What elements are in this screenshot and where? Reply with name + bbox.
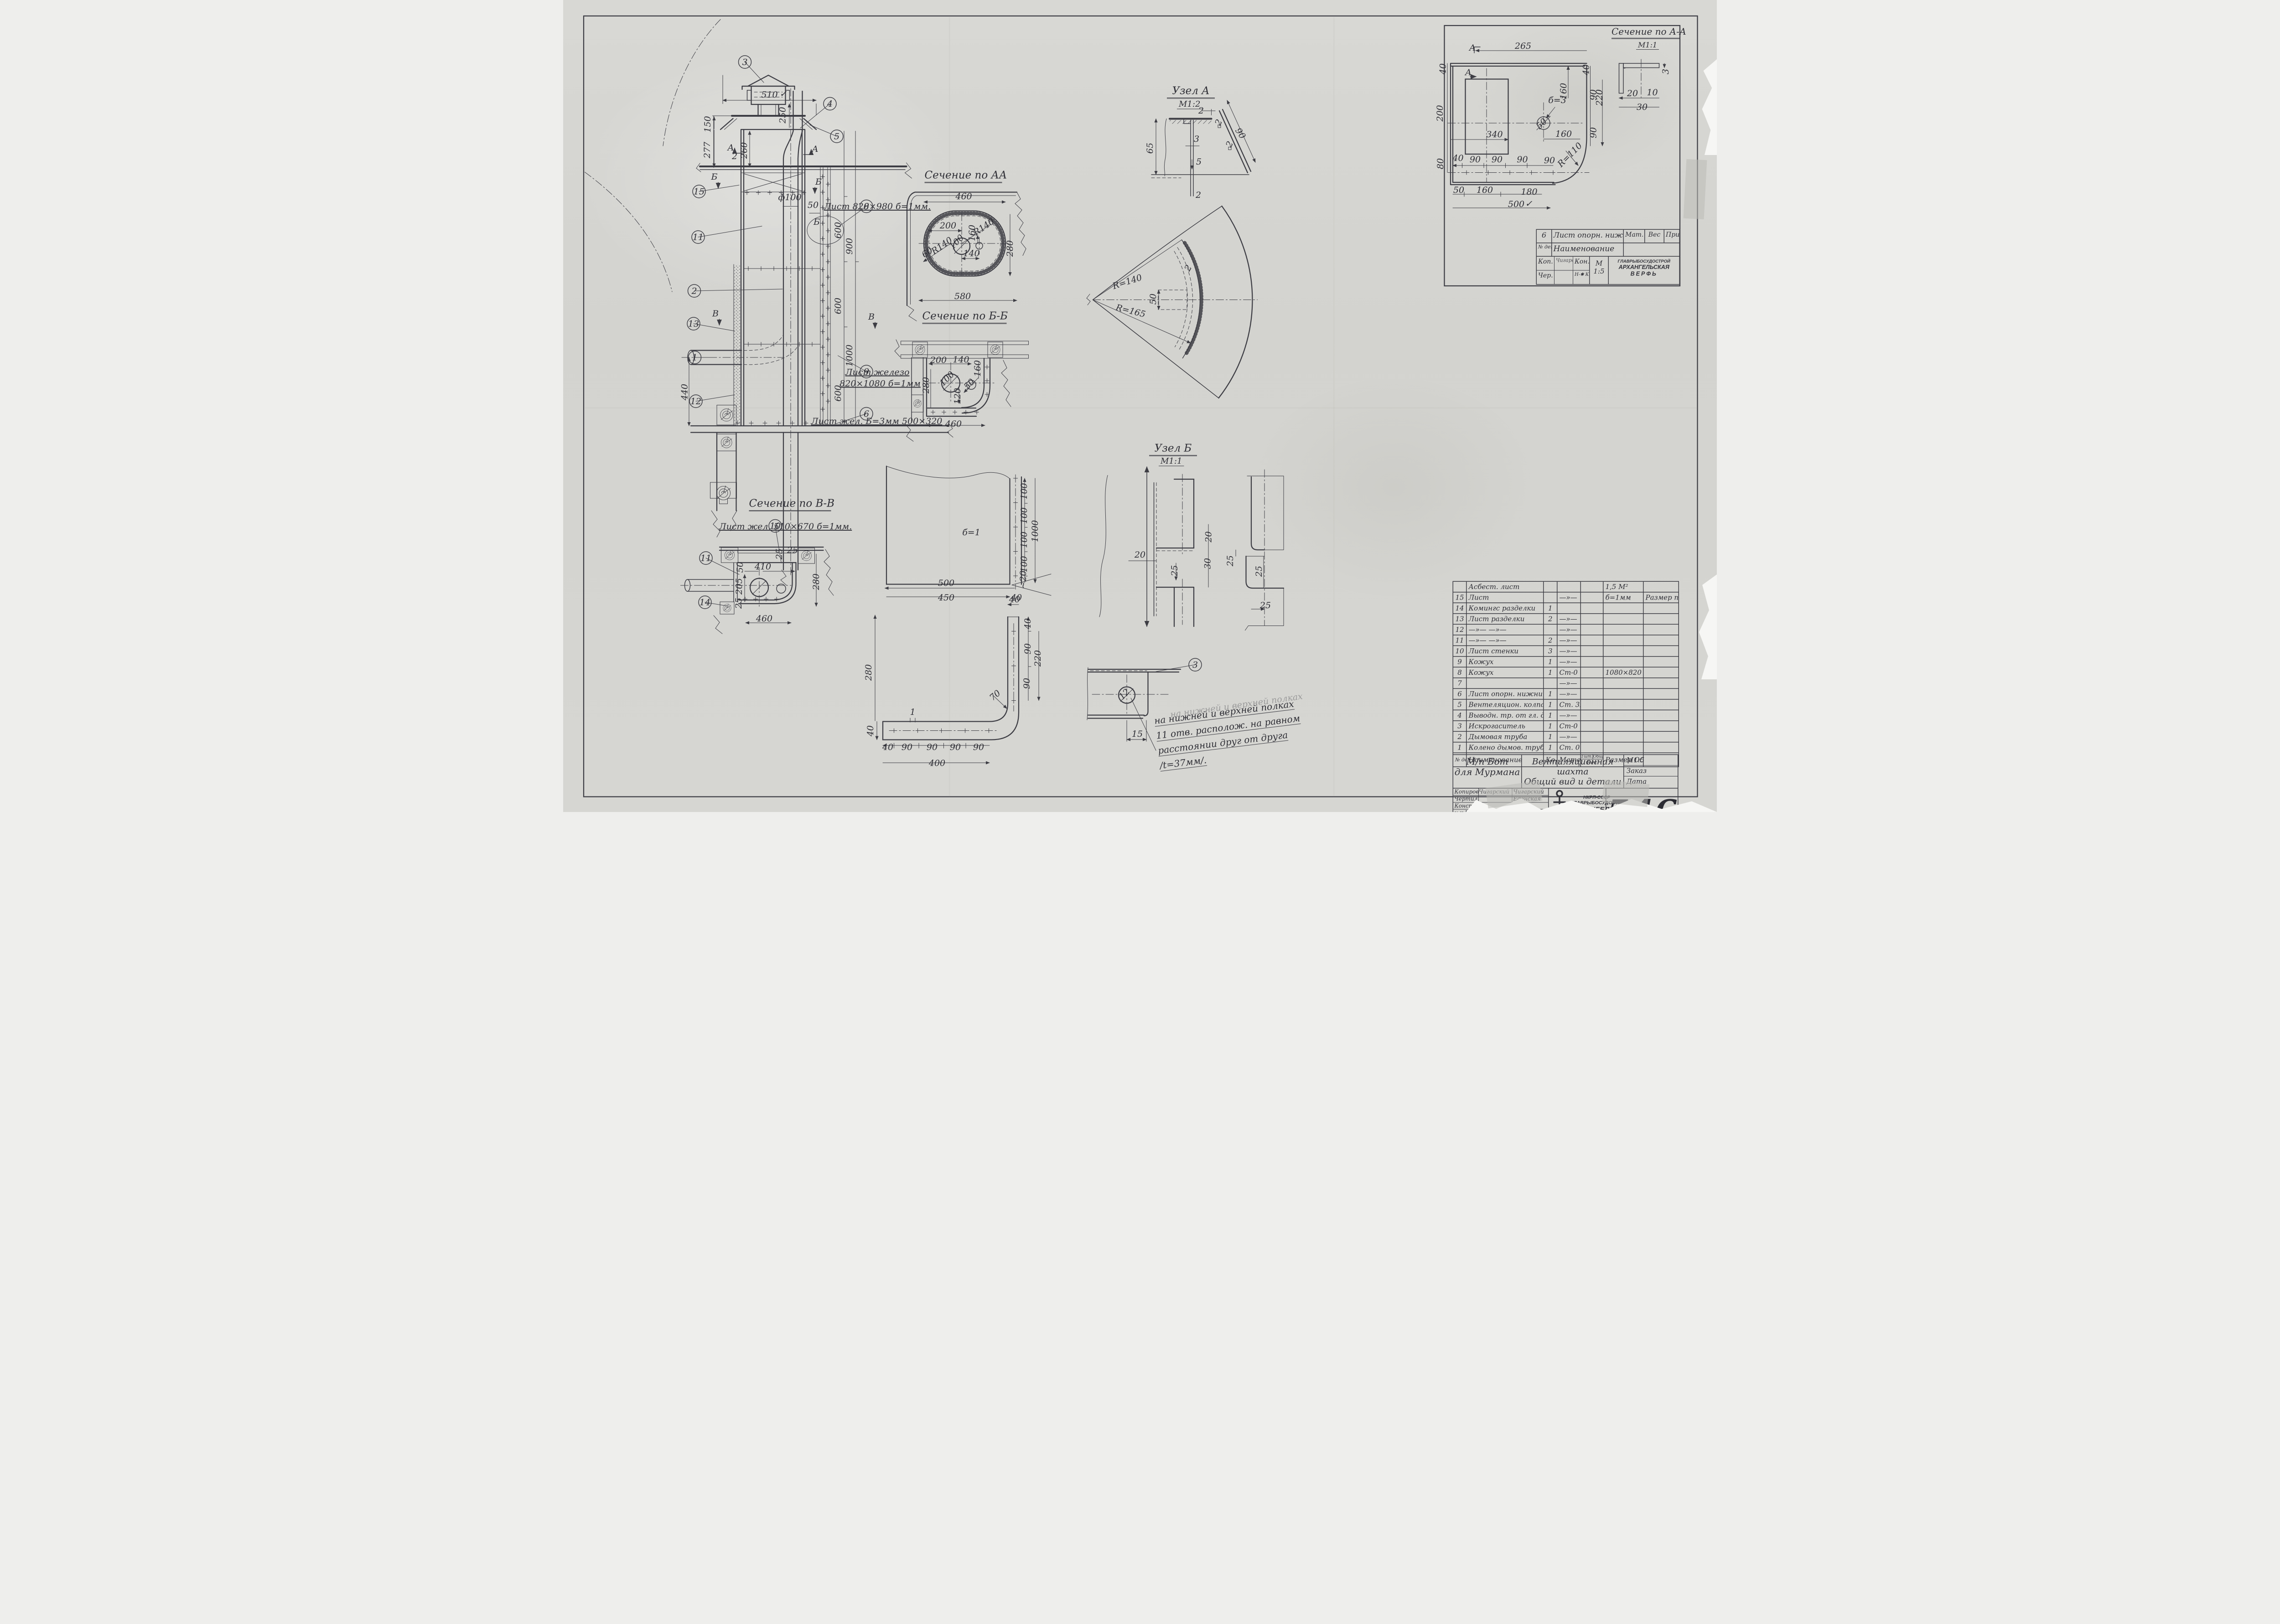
inset-header-empty xyxy=(1624,243,1679,256)
table-cell-qty xyxy=(1544,581,1557,592)
inset-title-table: 6 Лист опорн. нижний Мат. Вес Прим. № де… xyxy=(1536,229,1680,285)
table-cell-name: Лист опорн. нижний xyxy=(1466,688,1544,699)
inset-sig-block: Коп. Чигарский Кон. Чер. Н-✱ К.Б. xyxy=(1537,257,1590,284)
text-overlay: Сечение по АА Сечение по Б-Б Сечение по … xyxy=(563,0,1717,812)
table-cell-name: Выводн. тр. от гл. двигат. xyxy=(1466,710,1544,721)
table-cell-mat: —»— xyxy=(1557,635,1581,646)
table-cell-mat: —»— xyxy=(1557,688,1581,699)
table-cell-mat: —»— xyxy=(1557,614,1581,625)
table-cell-note xyxy=(1643,635,1679,646)
table-cell-ves xyxy=(1580,721,1603,732)
table-row: Асбест. лист1,5 М² xyxy=(1453,581,1679,592)
section-bb-title: Сечение по Б-Б xyxy=(922,310,1007,324)
table-cell-ves xyxy=(1580,592,1603,603)
table-cell-size: б=1мм xyxy=(1603,592,1643,603)
inset-org-line2: АРХАНГЕЛЬСКАЯ xyxy=(1609,264,1679,271)
inset-section-title: Сечение по А-А xyxy=(1612,26,1680,39)
table-cell-note xyxy=(1643,614,1679,625)
inset-org-line3: ВЕРФЬ xyxy=(1609,271,1679,278)
table-cell-ves xyxy=(1580,710,1603,721)
table-cell-n: 2 xyxy=(1453,731,1466,742)
parts-list-table: Асбест. лист1,5 М²15Лист—»—б=1ммРазмер п… xyxy=(1453,581,1679,767)
table-cell-note xyxy=(1643,624,1679,635)
scanned-blueprint-viewport: 510✓2501502772602ф1005060090060010006004… xyxy=(563,0,1717,812)
fold-crease-vertical-1 xyxy=(949,17,950,797)
table-cell-qty: 1 xyxy=(1544,657,1557,667)
table-cell-mat: Ст-0 xyxy=(1557,667,1581,678)
table-cell-name: Искрогаситель xyxy=(1466,721,1544,732)
table-cell-n: 10 xyxy=(1453,646,1466,657)
inset-scale-m: М xyxy=(1590,257,1608,268)
table-cell-note xyxy=(1643,646,1679,657)
table-cell-qty: 2 xyxy=(1544,614,1557,625)
table-cell-ves xyxy=(1580,614,1603,625)
note-line-4: /t=37мм/. xyxy=(1159,755,1207,771)
table-cell-note xyxy=(1643,678,1679,689)
fold-crease-vertical-2 xyxy=(1333,17,1335,797)
table-cell-mat: —»— xyxy=(1557,646,1581,657)
torn-edge-right-top xyxy=(1700,59,1717,155)
table-cell-qty: 1 xyxy=(1544,742,1557,753)
scale-value: М1:5 xyxy=(1624,755,1678,766)
table-cell-qty: 1 xyxy=(1544,731,1557,742)
tape-patch-2 xyxy=(1602,780,1650,807)
table-cell-n: 9 xyxy=(1453,657,1466,667)
table-cell-ves xyxy=(1580,603,1603,614)
table-cell-name xyxy=(1466,678,1544,689)
table-row: 4Выводн. тр. от гл. двигат.1—»— xyxy=(1453,710,1679,721)
table-cell-mat: —»— xyxy=(1557,678,1581,689)
table-cell-size xyxy=(1603,614,1643,625)
inset-section-scale: М1:1 xyxy=(1636,41,1659,50)
inset-col-ves: Вес xyxy=(1645,230,1665,243)
table-cell-name: Лист разделки xyxy=(1466,614,1544,625)
table-cell-note xyxy=(1643,699,1679,710)
table-cell-name: Вентеляцион. колпак xyxy=(1466,699,1544,710)
inset-col-mat: Мат. xyxy=(1624,230,1645,243)
inset-part-name: Лист опорн. нижний xyxy=(1552,230,1624,243)
uzel-a-title: Узел А xyxy=(1167,84,1215,99)
table-cell-mat: —»— xyxy=(1557,657,1581,667)
table-cell-size: 1080×820 б=1мм xyxy=(1603,667,1643,678)
table-cell-note xyxy=(1643,742,1679,753)
table-cell-name: Кожух xyxy=(1466,657,1544,667)
torn-edge-right-middle xyxy=(1698,574,1717,679)
table-cell-size xyxy=(1603,710,1643,721)
table-cell-qty: 1 xyxy=(1544,721,1557,732)
table-cell-mat: Ст. 3Н xyxy=(1557,699,1581,710)
table-row: 1Колено дымов. трубы1Ст. 0 xyxy=(1453,742,1679,753)
table-cell-ves xyxy=(1580,678,1603,689)
table-row: 15Лист—»—б=1ммРазмер по месту. xyxy=(1453,592,1679,603)
table-cell-ves xyxy=(1580,699,1603,710)
table-cell-name: Кожух xyxy=(1466,667,1544,678)
table-cell-mat: —»— xyxy=(1557,624,1581,635)
table-row: 12—»— —»——»— xyxy=(1453,624,1679,635)
uzel-b-scale: М1:1 xyxy=(1159,456,1184,466)
table-cell-mat xyxy=(1557,603,1581,614)
table-cell-qty: 1 xyxy=(1544,699,1557,710)
object-line2: для Мурмана xyxy=(1453,767,1521,777)
inset-cher-label: Чер. xyxy=(1537,271,1555,284)
table-row: 2Дымовая труба1—»— xyxy=(1453,731,1679,742)
table-cell-note xyxy=(1643,657,1679,667)
signature-role: Копиров xyxy=(1453,789,1479,795)
table-cell-qty: 1 xyxy=(1544,667,1557,678)
table-cell-ves xyxy=(1580,742,1603,753)
drawing-title-line1: Вентиляционная шахта xyxy=(1522,756,1624,776)
table-cell-note xyxy=(1643,667,1679,678)
table-cell-note xyxy=(1643,688,1679,699)
inset-kon-label: Кон. xyxy=(1573,257,1589,270)
table-cell-size xyxy=(1603,731,1643,742)
inset-nkkb-label: Н-✱ К.Б. xyxy=(1573,271,1589,284)
fold-crease-horizontal xyxy=(585,408,1698,409)
table-cell-qty: 2 xyxy=(1544,635,1557,646)
table-cell-n: 6 xyxy=(1453,688,1466,699)
table-cell-size xyxy=(1603,624,1643,635)
table-cell-mat: —»— xyxy=(1557,731,1581,742)
table-cell-size xyxy=(1603,721,1643,732)
inset-cher-sig xyxy=(1555,271,1573,284)
uzel-b-title: Узел Б xyxy=(1149,442,1197,456)
table-cell-name: Дымовая труба xyxy=(1466,731,1544,742)
table-cell-n: 14 xyxy=(1453,603,1466,614)
table-row: 5Вентеляцион. колпак1Ст. 3Н xyxy=(1453,699,1679,710)
table-cell-n: 8 xyxy=(1453,667,1466,678)
table-cell-qty: 1 xyxy=(1544,688,1557,699)
table-cell-ves xyxy=(1580,646,1603,657)
table-cell-note xyxy=(1643,721,1679,732)
table-row: 3Искрогаситель1Ст-0 xyxy=(1453,721,1679,732)
table-row: 13Лист разделки2—»— xyxy=(1453,614,1679,625)
table-cell-note xyxy=(1643,731,1679,742)
table-cell-qty xyxy=(1544,592,1557,603)
table-cell-size: 1,5 М² xyxy=(1603,581,1643,592)
table-cell-n: 7 xyxy=(1453,678,1466,689)
table-cell-mat: —»— xyxy=(1557,710,1581,721)
table-cell-n: 5 xyxy=(1453,699,1466,710)
table-cell-size xyxy=(1603,699,1643,710)
table-cell-n: 12 xyxy=(1453,624,1466,635)
table-cell-ves xyxy=(1580,581,1603,592)
order-label: Заказ xyxy=(1624,766,1678,777)
table-cell-n xyxy=(1453,581,1466,592)
table-cell-name: Лист стенки xyxy=(1466,646,1544,657)
table-cell-ves xyxy=(1580,731,1603,742)
table-cell-n: 11 xyxy=(1453,635,1466,646)
table-cell-n: 3 xyxy=(1453,721,1466,732)
inset-header-name: Наименование xyxy=(1552,243,1624,256)
table-cell-qty: 1 xyxy=(1544,603,1557,614)
table-cell-qty: 1 xyxy=(1544,710,1557,721)
inset-col-prim: Прим. xyxy=(1664,230,1679,243)
table-cell-ves xyxy=(1580,657,1603,667)
table-cell-ves xyxy=(1580,635,1603,646)
table-cell-n: 1 xyxy=(1453,742,1466,753)
inset-kop-label: Коп. xyxy=(1537,257,1555,270)
table-cell-note xyxy=(1643,581,1679,592)
table-cell-name: Колено дымов. трубы xyxy=(1466,742,1544,753)
section-aa-title: Сечение по АА xyxy=(925,169,1002,183)
tape-patch-3 xyxy=(1684,159,1707,219)
table-row: 6Лист опорн. нижний1—»— xyxy=(1453,688,1679,699)
table-row: 7—»— xyxy=(1453,678,1679,689)
table-cell-name: Комингс разделки xyxy=(1466,603,1544,614)
table-cell-n: 13 xyxy=(1453,614,1466,625)
section-vv-title: Сечение по В-В xyxy=(749,497,831,512)
table-cell-mat xyxy=(1557,581,1581,592)
table-row: 10Лист стенки3—»— xyxy=(1453,646,1679,657)
table-row: 9Кожух1—»— xyxy=(1453,657,1679,667)
table-cell-size xyxy=(1603,635,1643,646)
table-cell-size xyxy=(1603,646,1643,657)
inset-scale-cell: М 1:5 xyxy=(1590,257,1609,284)
inset-part-number: 6 xyxy=(1537,230,1552,243)
blueprint-sheet: 510✓2501502772602ф1005060090060010006004… xyxy=(563,0,1717,812)
inset-org-line1: ГЛАВРЫБОСУДОСТРОЙ xyxy=(1609,257,1679,264)
uzel-a-scale: М1:2 xyxy=(1177,99,1202,109)
table-cell-name: —»— —»— xyxy=(1466,624,1544,635)
table-cell-mat: —»— xyxy=(1557,592,1581,603)
table-cell-name: Лист xyxy=(1466,592,1544,603)
table-cell-size xyxy=(1603,603,1643,614)
table-cell-size xyxy=(1603,742,1643,753)
object-cell: М/п Бот для Мурмана xyxy=(1453,755,1522,788)
table-cell-ves xyxy=(1580,667,1603,678)
table-cell-n: 4 xyxy=(1453,710,1466,721)
table-cell-note xyxy=(1643,710,1679,721)
table-cell-qty xyxy=(1544,624,1557,635)
table-cell-note xyxy=(1643,603,1679,614)
table-cell-qty xyxy=(1544,678,1557,689)
table-row: 11—»— —»—2—»— xyxy=(1453,635,1679,646)
table-cell-name: —»— —»— xyxy=(1466,635,1544,646)
table-cell-size xyxy=(1603,688,1643,699)
parts-list-body: Асбест. лист1,5 М²15Лист—»—б=1ммРазмер п… xyxy=(1453,581,1679,753)
table-cell-qty: 3 xyxy=(1544,646,1557,657)
table-cell-name: Асбест. лист xyxy=(1466,581,1544,592)
inset-header-det: № дет. xyxy=(1537,243,1552,256)
table-cell-ves xyxy=(1580,688,1603,699)
table-cell-ves xyxy=(1580,624,1603,635)
table-cell-n: 15 xyxy=(1453,592,1466,603)
inset-scale-value: 1:5 xyxy=(1590,268,1608,276)
table-cell-mat: Ст. 0 xyxy=(1557,742,1581,753)
inset-kop-signature: Чигарский xyxy=(1555,257,1573,270)
table-cell-mat: Ст-0 xyxy=(1557,721,1581,732)
object-line1: М/п Бот xyxy=(1453,756,1521,767)
table-row: 14Комингс разделки1 xyxy=(1453,603,1679,614)
table-cell-size xyxy=(1603,678,1643,689)
inset-org-cell: ГЛАВРЫБОСУДОСТРОЙ АРХАНГЕЛЬСКАЯ ВЕРФЬ xyxy=(1609,257,1679,284)
table-cell-size xyxy=(1603,657,1643,667)
table-cell-note: Размер по месту. xyxy=(1643,592,1679,603)
table-row: 8Кожух1Ст-01080×820 б=1мм xyxy=(1453,667,1679,678)
